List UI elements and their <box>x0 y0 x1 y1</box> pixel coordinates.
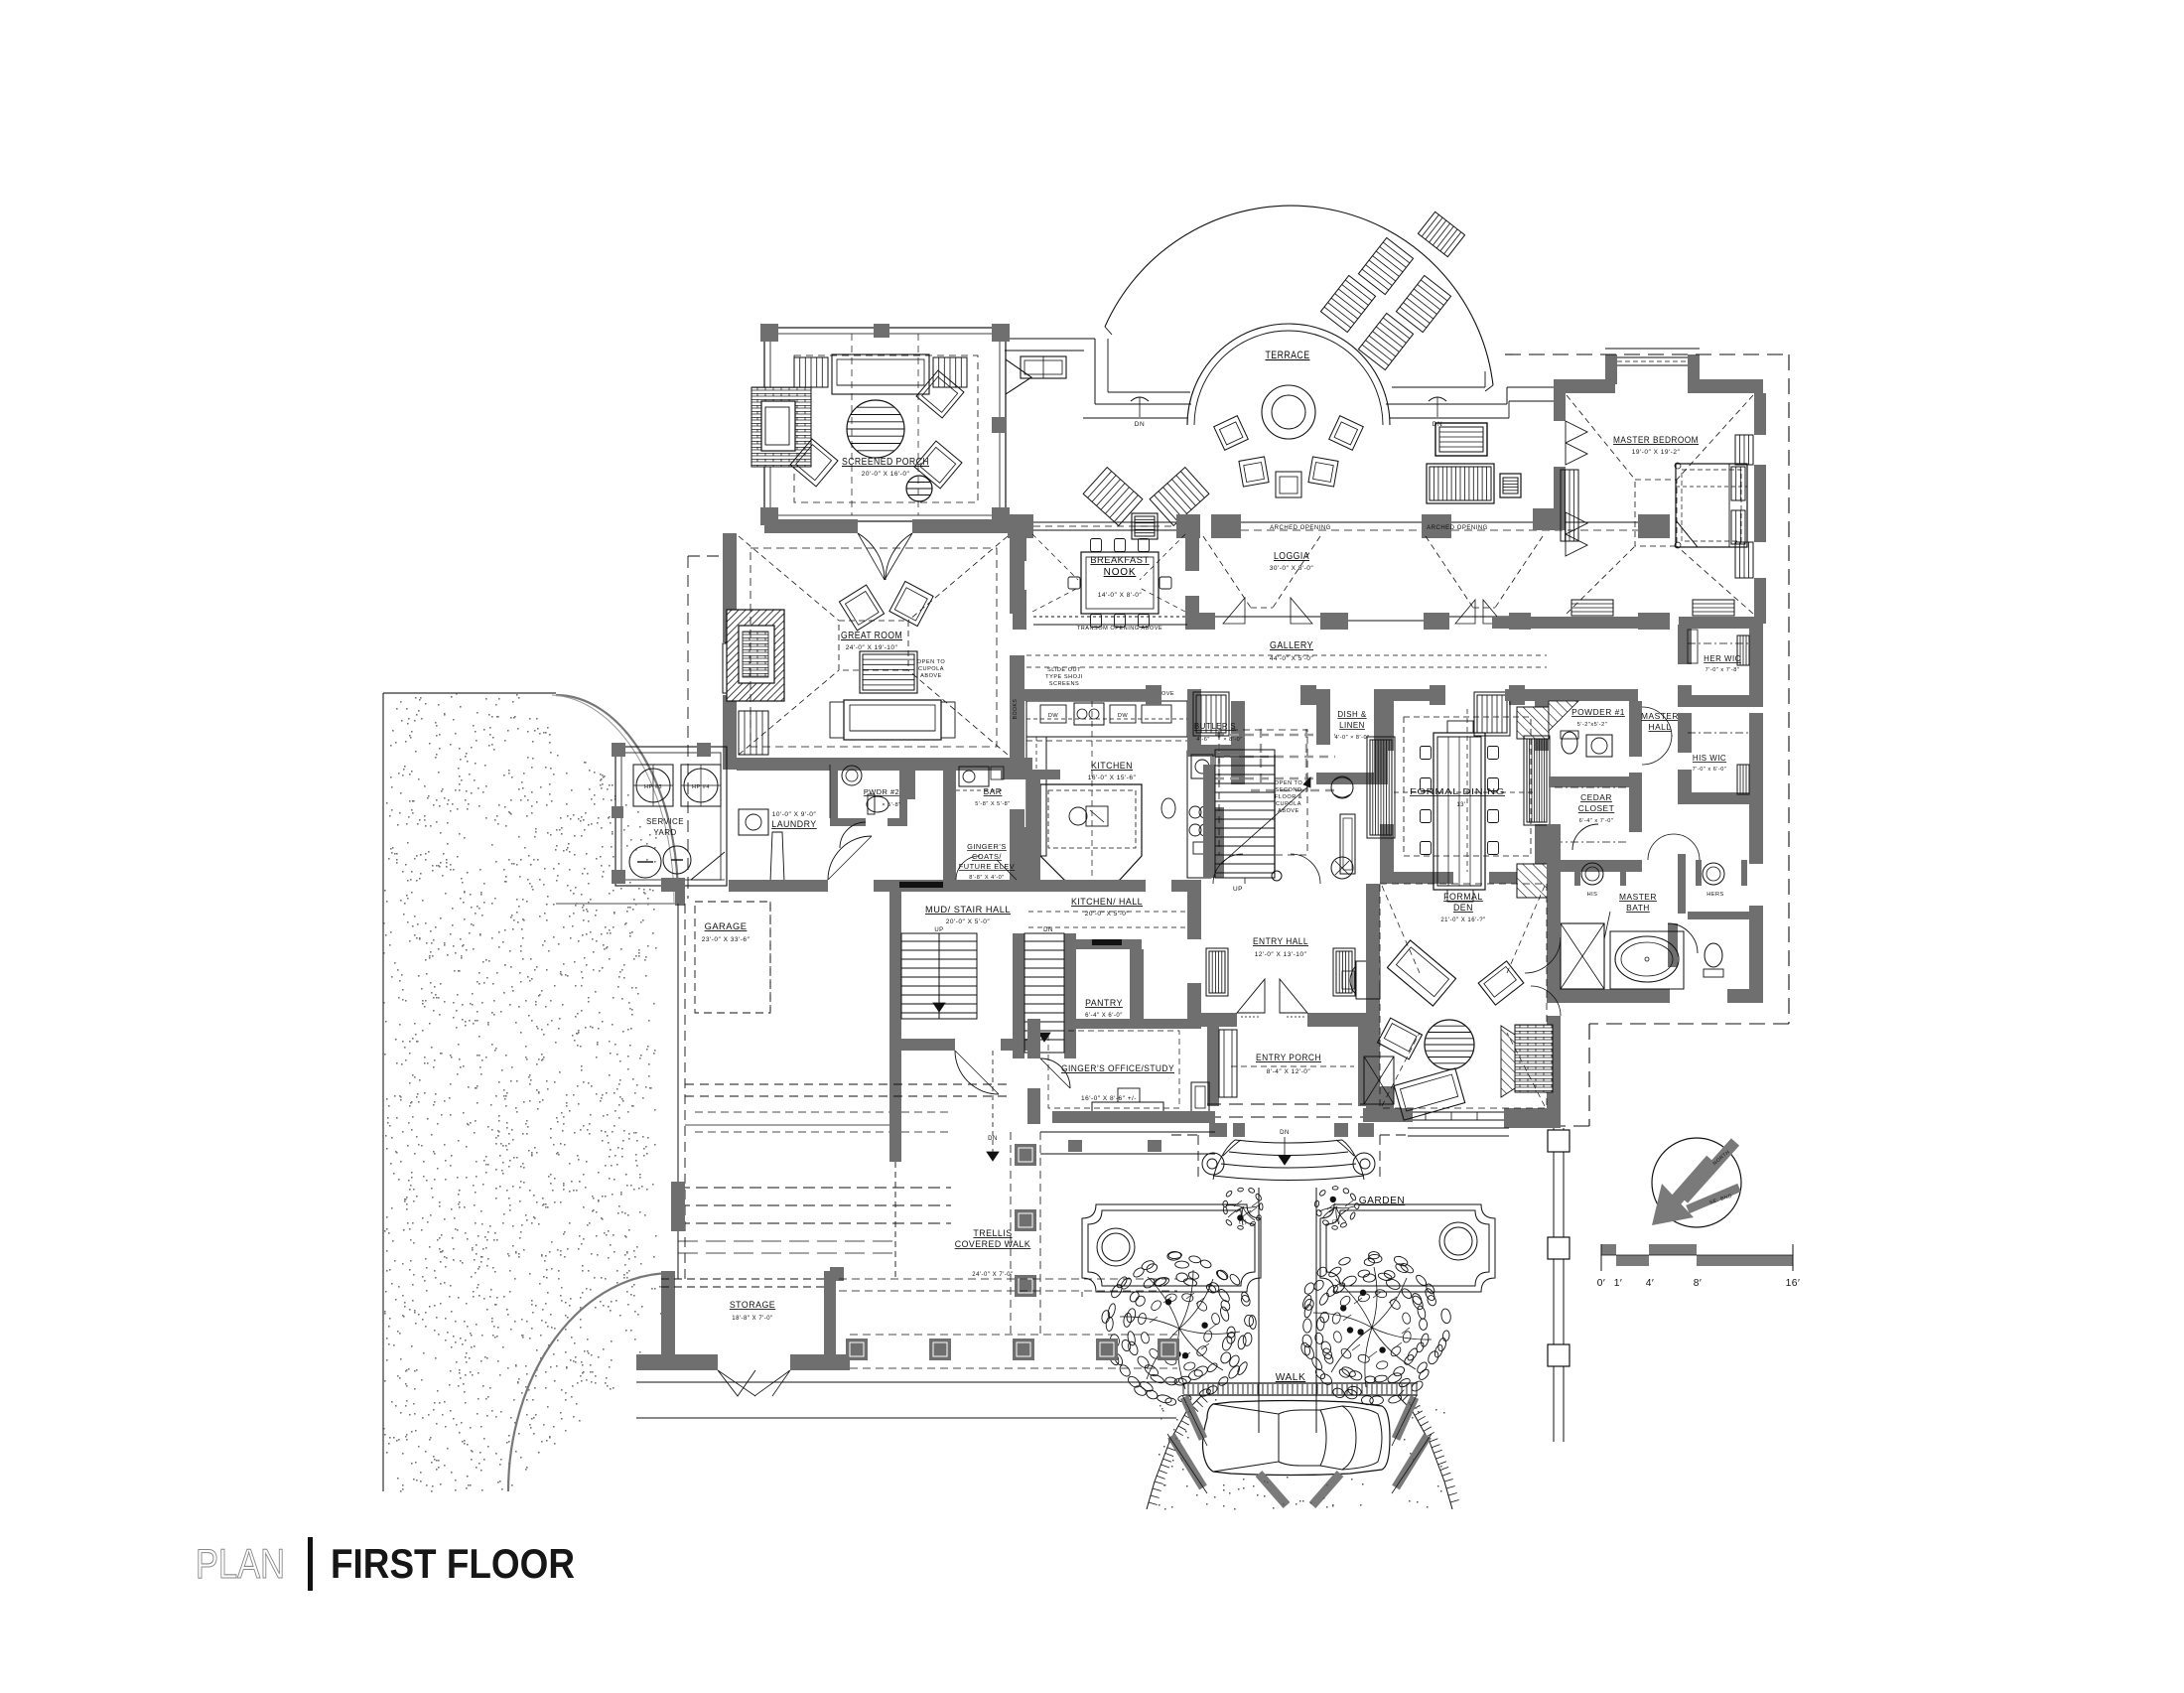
svg-text:ARCHED OPENING: ARCHED OPENING <box>1270 525 1331 531</box>
svg-text:20′-0″ X 16′-0″: 20′-0″ X 16′-0″ <box>862 471 910 478</box>
svg-text:24′-0″ X 19′-10″: 24′-0″ X 19′-10″ <box>846 644 898 651</box>
svg-text:21′-0″ X 16′-?″: 21′-0″ X 16′-?″ <box>1440 917 1486 923</box>
svg-text:SLIDE OUT: SLIDE OUT <box>1047 667 1081 673</box>
svg-text:TERRACE: TERRACE <box>1266 350 1310 361</box>
svg-text:NOOK: NOOK <box>1104 567 1137 578</box>
svg-text:19′-0″ X 19′-2″: 19′-0″ X 19′-2″ <box>1632 449 1681 456</box>
svg-text:16′: 16′ <box>1786 1278 1801 1289</box>
svg-text:HERS: HERS <box>1706 892 1724 898</box>
svg-text:MUD/ STAIR HALL: MUD/ STAIR HALL <box>925 905 1011 915</box>
svg-text:FORMAL: FORMAL <box>1443 892 1483 902</box>
svg-text:5′-8″ X 5′-8″: 5′-8″ X 5′-8″ <box>975 801 1011 807</box>
svg-text:SERVICE: SERVICE <box>646 817 684 826</box>
svg-text:FLOOR &: FLOOR & <box>1275 794 1302 800</box>
svg-text:DN: DN <box>1135 421 1145 428</box>
svg-text:7′-0″ x 6′-0″: 7′-0″ x 6′-0″ <box>1693 767 1727 773</box>
svg-text:CUPOLA: CUPOLA <box>1276 801 1301 807</box>
svg-text:HP #3: HP #3 <box>644 784 662 790</box>
svg-text:GREAT ROOM: GREAT ROOM <box>841 631 902 641</box>
svg-text:SCREENED PORCH: SCREENED PORCH <box>842 457 929 468</box>
svg-text:4′: 4′ <box>1646 1278 1655 1289</box>
svg-text:BREAKFAST: BREAKFAST <box>1090 555 1149 565</box>
svg-text:18′-8″ X 7′-0″: 18′-8″ X 7′-0″ <box>732 1316 773 1322</box>
svg-text:HIS: HIS <box>1587 892 1598 898</box>
svg-text:24′-0″ X 7′-0″: 24′-0″ X 7′-0″ <box>972 1272 1014 1278</box>
svg-text:UP: UP <box>934 927 943 933</box>
svg-text:DW: DW <box>1118 713 1129 719</box>
svg-text:YARD: YARD <box>653 828 676 837</box>
svg-text:20′-0″ X 5′-0″: 20′-0″ X 5′-0″ <box>946 918 991 925</box>
svg-text:DEN: DEN <box>1453 903 1473 913</box>
svg-text:30′-0″ X 8′-0″: 30′-0″ X 8′-0″ <box>1270 565 1314 572</box>
svg-text:6′-4″ X 6′-0″: 6′-4″ X 6′-0″ <box>1085 1013 1123 1019</box>
svg-text:FIRST FLOOR: FIRST FLOOR <box>331 1540 575 1587</box>
svg-text:7′-0″ x 7′-8″: 7′-0″ x 7′-8″ <box>1706 667 1740 673</box>
svg-text:PANTRY: PANTRY <box>1085 998 1123 1008</box>
svg-text:BATH: BATH <box>1626 903 1650 913</box>
svg-text:CUPOLA: CUPOLA <box>918 666 944 672</box>
svg-text:ABOVE: ABOVE <box>920 673 942 679</box>
svg-text:CEDAR: CEDAR <box>1580 792 1612 802</box>
svg-text:23′-0″ X 33′-6″: 23′-0″ X 33′-6″ <box>702 936 751 943</box>
svg-text:HIS WIC: HIS WIC <box>1693 754 1726 763</box>
svg-text:FORMAL DINING: FORMAL DINING <box>1410 786 1505 796</box>
svg-text:6′-4″ x 7′-0″: 6′-4″ x 7′-0″ <box>1579 818 1614 824</box>
svg-text:× 8′-0″: × 8′-0″ <box>1223 737 1242 743</box>
svg-text:× 5′-8″: × 5′-8″ <box>882 802 900 808</box>
svg-text:WALK: WALK <box>1276 1372 1306 1383</box>
svg-text:4′-6″: 4′-6″ <box>1196 737 1210 743</box>
svg-text:KITCHEN: KITCHEN <box>1091 761 1133 771</box>
svg-text:TRELLIS: TRELLIS <box>973 1228 1012 1238</box>
svg-text:GALLERY: GALLERY <box>1270 640 1313 651</box>
svg-text:13′: 13′ <box>1456 802 1466 808</box>
svg-text:PLAN: PLAN <box>196 1540 285 1587</box>
svg-text:ENTRY HALL: ENTRY HALL <box>1253 936 1308 946</box>
svg-text:HER WIC: HER WIC <box>1704 654 1741 663</box>
svg-text:BAR: BAR <box>984 786 1003 796</box>
svg-text:ABOVE: ABOVE <box>1278 808 1299 814</box>
svg-text:LINEN: LINEN <box>1339 721 1365 730</box>
svg-text:TRANSOM OPENING ABOVE: TRANSOM OPENING ABOVE <box>1077 626 1162 632</box>
svg-text:ENTRY PORCH: ENTRY PORCH <box>1256 1053 1321 1062</box>
svg-text:0′: 0′ <box>1597 1278 1606 1289</box>
svg-text:BUTLER’S: BUTLER’S <box>1194 722 1236 731</box>
svg-text:HALL: HALL <box>1649 722 1672 732</box>
svg-text:GARAGE: GARAGE <box>705 921 748 931</box>
svg-text:KITCHEN/ HALL: KITCHEN/ HALL <box>1071 897 1143 907</box>
svg-text:DN: DN <box>1043 927 1053 933</box>
svg-text:16′-0″ X 8′-6″ +/-: 16′-0″ X 8′-6″ +/- <box>1081 1095 1137 1102</box>
svg-text:5′-2″x5′-2″: 5′-2″x5′-2″ <box>1577 722 1608 728</box>
svg-text:HP #4: HP #4 <box>692 784 710 790</box>
svg-text:DN: DN <box>1280 1130 1290 1136</box>
svg-text:BOOKS: BOOKS <box>1013 699 1019 720</box>
svg-text:4′-0″ × 8′-0″: 4′-0″ × 8′-0″ <box>1334 735 1369 741</box>
svg-text:UP: UP <box>1233 886 1243 893</box>
svg-text:MASTER BEDROOM: MASTER BEDROOM <box>1613 435 1699 445</box>
svg-text:(?): (?) <box>1239 1219 1247 1225</box>
svg-text:10′-0″ X 9′-0″: 10′-0″ X 9′-0″ <box>772 811 817 818</box>
svg-text:SECOND: SECOND <box>1276 787 1302 793</box>
svg-text:44′-0″ X 5′-0″: 44′-0″ X 5′-0″ <box>1270 655 1314 662</box>
svg-text:LOGGIA: LOGGIA <box>1274 551 1309 562</box>
svg-text:POWDER #1: POWDER #1 <box>1571 707 1625 717</box>
svg-text:LAUNDRY: LAUNDRY <box>771 819 816 829</box>
svg-text:8′-4″ X 12′-0″: 8′-4″ X 12′-0″ <box>1267 1068 1311 1075</box>
svg-text:DISH &: DISH & <box>1337 710 1367 719</box>
svg-text:PWDR #2: PWDR #2 <box>864 787 899 796</box>
svg-text:MASTER: MASTER <box>1619 892 1657 902</box>
svg-text:OPEN TO: OPEN TO <box>1275 780 1303 786</box>
svg-text:8′-8″ X 4′-0″: 8′-8″ X 4′-0″ <box>969 875 1005 881</box>
svg-text:16′-0″ X 15′-6″: 16′-0″ X 15′-6″ <box>1088 775 1137 781</box>
svg-text:COVERED WALK: COVERED WALK <box>955 1239 1031 1249</box>
svg-text:12′-0″ X 13′-10″: 12′-0″ X 13′-10″ <box>1255 951 1307 958</box>
svg-text:8′: 8′ <box>1694 1278 1703 1289</box>
svg-text:1′: 1′ <box>1614 1278 1623 1289</box>
svg-text:ARCHED OPENING: ARCHED OPENING <box>1427 525 1488 531</box>
svg-text:DW: DW <box>1048 713 1059 719</box>
svg-text:(?): (?) <box>1332 1219 1340 1225</box>
svg-text:TYPE SHOJI: TYPE SHOJI <box>1045 674 1083 680</box>
svg-text:OPEN TO: OPEN TO <box>917 659 946 665</box>
svg-text:SCREENS: SCREENS <box>1049 681 1080 687</box>
svg-text:STORAGE: STORAGE <box>730 1300 775 1310</box>
svg-text:14′-0″ X 8′-0″: 14′-0″ X 8′-0″ <box>1098 592 1143 599</box>
svg-text:GINGER’S OFFICE/STUDY: GINGER’S OFFICE/STUDY <box>1061 1063 1174 1073</box>
svg-text:GINGER’S: GINGER’S <box>967 842 1007 851</box>
svg-text:CLOSET: CLOSET <box>1578 803 1615 813</box>
